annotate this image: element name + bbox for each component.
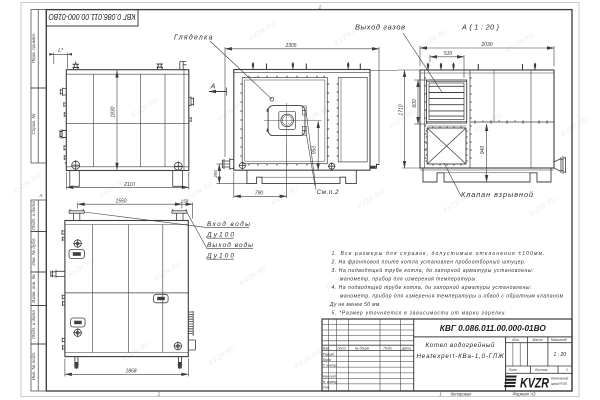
svg-text:1. Все размеры для справок, до: 1. Все размеры для справок, допустимые о…: [332, 251, 545, 257]
svg-text:2: 2: [157, 391, 161, 396]
svg-text:Перв. примен.: Перв. примен.: [31, 33, 36, 64]
svg-text:Ду100: Ду100: [206, 232, 234, 239]
svg-text:2110: 2110: [123, 182, 135, 188]
svg-text:4. На подводящей трубе котла,: 4. На подводящей трубе котла, до запорно…: [332, 284, 533, 291]
svg-text:Heatexpert-КВа-1,0-ГЛЖ: Heatexpert-КВа-1,0-ГЛЖ: [417, 353, 504, 360]
svg-text:См.п.2: См.п.2: [317, 189, 339, 196]
svg-text:манометр, прибор для измерения: манометр, прибор для измерения температу…: [340, 277, 477, 283]
svg-text:Лит.: Лит.: [511, 338, 520, 342]
svg-text:510: 510: [444, 51, 453, 57]
svg-text:А ( 1 : 20 ): А ( 1 : 20 ): [461, 23, 499, 32]
svg-text:Дата: Дата: [401, 346, 411, 350]
svg-text:Выход воды: Выход воды: [207, 241, 253, 249]
svg-text:2. На фронтовой плите котла ус: 2. На фронтовой плите котла установлен п…: [331, 259, 526, 266]
svg-text:Лист: Лист: [336, 346, 346, 350]
svg-text:1868: 1868: [125, 368, 136, 374]
svg-text:Вход воды: Вход воды: [207, 220, 250, 228]
svg-text:950: 950: [312, 146, 318, 155]
svg-text:1 : 20: 1 : 20: [554, 352, 567, 358]
svg-text:Утв.: Утв.: [323, 386, 331, 390]
svg-text:159: 159: [181, 198, 189, 203]
svg-text:Н. контр.: Н. контр.: [323, 380, 338, 384]
svg-text:1710: 1710: [398, 104, 404, 115]
svg-text:А: А: [38, 193, 42, 198]
svg-text:790: 790: [255, 190, 264, 196]
svg-text:2305: 2305: [284, 43, 296, 49]
svg-text:Подп. и дата: Подп. и дата: [31, 201, 36, 230]
svg-text:Клапан взрывной: Клапан взрывной: [461, 190, 533, 199]
svg-text:КВГ 0.086.011.00.000-01ВО: КВГ 0.086.011.00.000-01ВО: [440, 324, 547, 333]
svg-text:Подп.: Подп.: [384, 346, 393, 350]
svg-text:Котельный: Котельный: [551, 377, 569, 381]
svg-text:Ду100: Ду100: [206, 253, 234, 260]
svg-text:Изм.: Изм.: [323, 346, 330, 350]
svg-text:Ду не менее 50 мм.: Ду не менее 50 мм.: [329, 302, 381, 308]
svg-text:Формат А3: Формат А3: [513, 392, 537, 397]
svg-text:3. На подводящей трубе котла,: 3. На подводящей трубе котла, до запорно…: [332, 267, 535, 274]
svg-text:Справ. №: Справ. №: [31, 114, 36, 135]
svg-text:Масса: Масса: [533, 338, 543, 342]
svg-text:Инв. № дубл.: Инв. № дубл.: [31, 237, 36, 265]
svg-text:№ докум.: № докум.: [355, 346, 370, 350]
svg-text:1: 1: [439, 392, 441, 397]
svg-text:Лист: Лист: [508, 368, 518, 372]
svg-text:Котел водогрейный: Котел водогрейный: [426, 342, 496, 349]
svg-text:KVZR: KVZR: [520, 375, 550, 391]
svg-text:завод РЭП: завод РЭП: [550, 382, 568, 386]
svg-text:1830: 1830: [111, 106, 117, 117]
svg-text:1: 1: [566, 368, 568, 372]
svg-text:Масштаб: Масштаб: [551, 338, 567, 342]
svg-text:Выход газов: Выход газов: [355, 23, 405, 32]
svg-text:2: 2: [318, 5, 322, 10]
svg-text:Разраб.: Разраб.: [323, 352, 335, 356]
svg-text:Листов: Листов: [534, 368, 548, 372]
svg-text:Т. контр.: Т. контр.: [323, 363, 338, 367]
svg-text:манометр, прибор для измерения: манометр, прибор для измерения температу…: [340, 294, 564, 300]
svg-text:5. *Размер уточняется в зависи: 5. *Размер уточняется в зависимости от м…: [332, 311, 507, 317]
svg-text:600: 600: [412, 99, 418, 108]
svg-text:Нач.отд.: Нач.отд.: [323, 375, 337, 379]
svg-text:940: 940: [480, 146, 486, 155]
svg-text:2030: 2030: [480, 42, 492, 48]
svg-text:Взам. инв. №: Взам. инв. №: [31, 274, 36, 302]
svg-text:Копировал: Копировал: [451, 392, 472, 397]
svg-text:А: А: [209, 82, 215, 91]
svg-text:Пров.: Пров.: [323, 358, 332, 362]
svg-text:1550: 1550: [115, 198, 126, 204]
svg-text:Гляделка: Гляделка: [174, 34, 213, 42]
svg-text:Подп. и дата: Подп. и дата: [31, 310, 36, 339]
svg-text:Инв. № подл.: Инв. № подл.: [31, 352, 36, 381]
svg-text:КВГ 0.086.011.00.000-01ВО: КВГ 0.086.011.00.000-01ВО: [48, 12, 135, 22]
svg-text:290: 290: [213, 170, 218, 179]
